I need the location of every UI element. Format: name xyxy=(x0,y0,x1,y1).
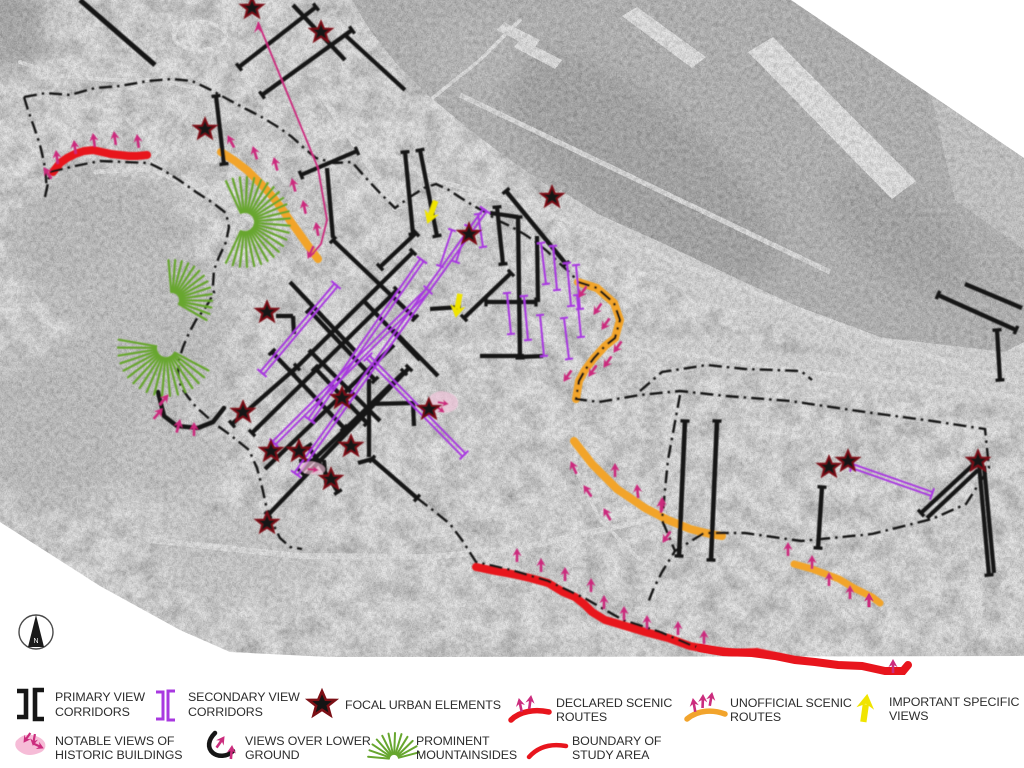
svg-text:DECLARED SCENIC: DECLARED SCENIC xyxy=(556,696,672,710)
svg-text:CORRIDORS: CORRIDORS xyxy=(188,705,263,719)
svg-text:PROMINENT: PROMINENT xyxy=(416,734,490,748)
svg-text:STUDY AREA: STUDY AREA xyxy=(572,748,650,762)
svg-text:VIEWS: VIEWS xyxy=(889,709,928,723)
svg-text:CORRIDORS: CORRIDORS xyxy=(55,705,130,719)
svg-text:MOUNTAINSIDES: MOUNTAINSIDES xyxy=(416,748,517,762)
svg-text:IMPORTANT SPECIFIC: IMPORTANT SPECIFIC xyxy=(889,695,1020,709)
svg-text:ROUTES: ROUTES xyxy=(730,710,781,724)
svg-text:BOUNDARY OF: BOUNDARY OF xyxy=(572,734,662,748)
svg-text:N: N xyxy=(33,638,38,645)
svg-text:FOCAL URBAN ELEMENTS: FOCAL URBAN ELEMENTS xyxy=(345,698,501,712)
svg-text:GROUND: GROUND xyxy=(245,748,300,762)
svg-text:NOTABLE VIEWS OF: NOTABLE VIEWS OF xyxy=(55,734,175,748)
svg-text:PRIMARY VIEW: PRIMARY VIEW xyxy=(55,690,145,704)
svg-text:HISTORIC BUILDINGS: HISTORIC BUILDINGS xyxy=(55,748,182,762)
svg-text:ROUTES: ROUTES xyxy=(556,710,607,724)
svg-text:VIEWS OVER LOWER: VIEWS OVER LOWER xyxy=(245,734,371,748)
svg-text:SECONDARY VIEW: SECONDARY VIEW xyxy=(188,690,300,704)
svg-text:UNOFFICIAL SCENIC: UNOFFICIAL SCENIC xyxy=(730,696,852,710)
